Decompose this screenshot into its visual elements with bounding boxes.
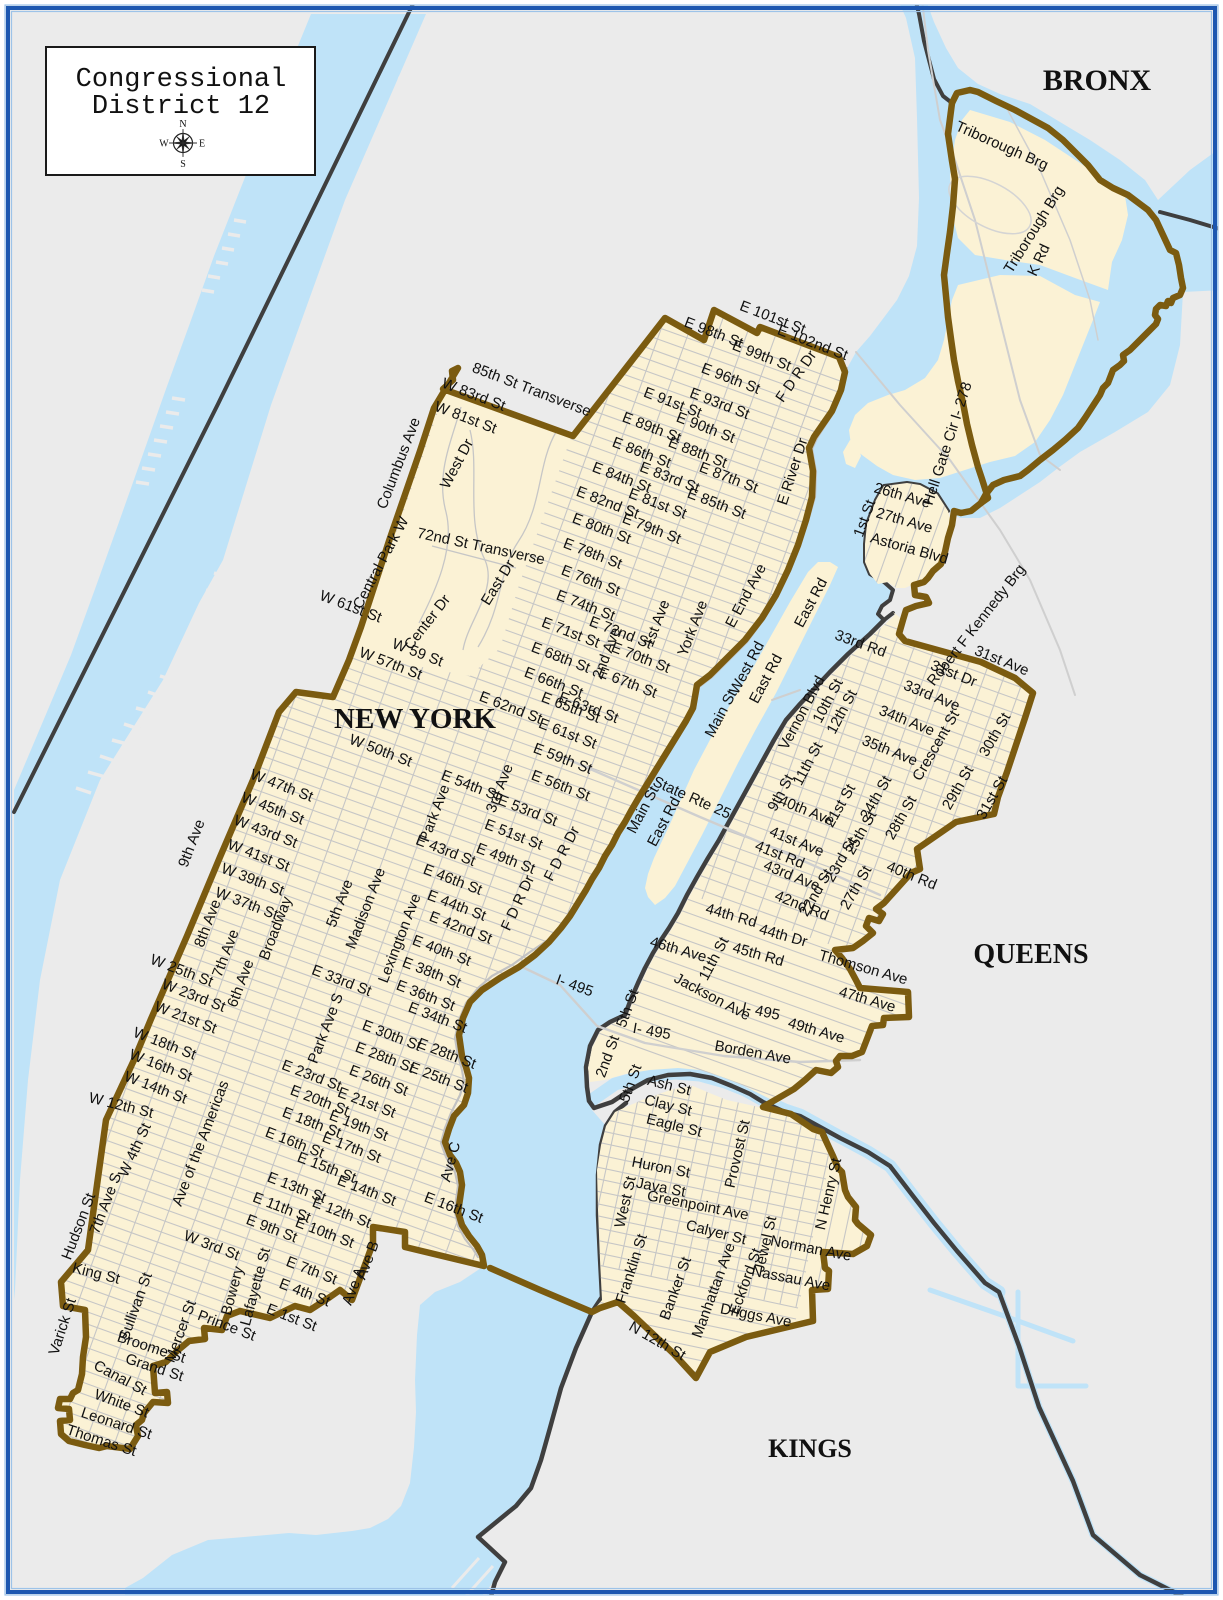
svg-text:BRONX: BRONX	[1043, 64, 1152, 97]
svg-text:NEW YORK: NEW YORK	[334, 703, 496, 735]
svg-text:S: S	[180, 159, 186, 170]
svg-text:District 12: District 12	[92, 92, 270, 122]
svg-text:Congressional: Congressional	[76, 65, 287, 95]
svg-text:E: E	[199, 139, 205, 150]
svg-text:QUEENS: QUEENS	[973, 939, 1088, 970]
svg-text:KINGS: KINGS	[768, 1434, 852, 1463]
svg-text:W: W	[159, 139, 169, 150]
svg-text:N: N	[179, 119, 186, 130]
